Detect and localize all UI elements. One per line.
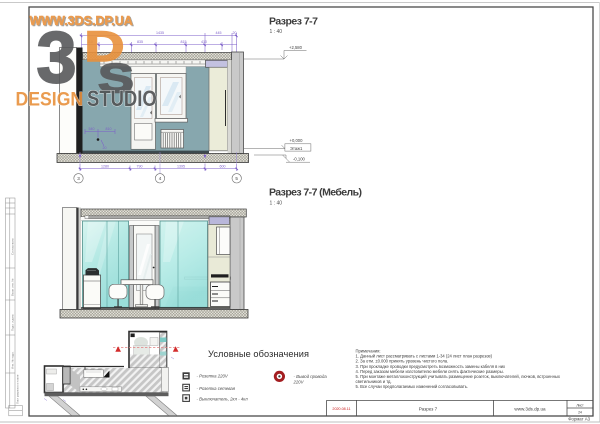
svg-text:Этаж1: Этаж1 [290, 146, 303, 151]
svg-text:Разрез 7-7: Разрез 7-7 [269, 16, 318, 28]
svg-text:5: 5 [235, 176, 238, 181]
svg-text:Условные обозначения: Условные обозначения [208, 349, 309, 359]
svg-text:1395: 1395 [177, 164, 185, 168]
svg-text:Подп. и дата: Подп. и дата [11, 314, 15, 331]
svg-text:5. Все случаи предполагаемых и: 5. Все случаи предполагаемых изменений с… [356, 384, 469, 389]
svg-text:1435: 1435 [156, 31, 164, 35]
svg-text:810: 810 [106, 127, 112, 131]
svg-text:790: 790 [137, 164, 143, 168]
svg-text:3: 3 [77, 176, 80, 181]
svg-text:Инв. № подл.: Инв. № подл. [11, 351, 15, 369]
svg-text:- Вывод провода: - Вывод провода [294, 374, 328, 379]
svg-text:STUDIO: STUDIO [87, 88, 157, 112]
svg-text:3: 3 [37, 18, 77, 98]
svg-text:Формат А3: Формат А3 [568, 417, 590, 422]
svg-text:815: 815 [181, 40, 187, 44]
svg-text:Разрез 7-7 (Мебель): Разрез 7-7 (Мебель) [269, 187, 362, 199]
svg-text:DESIGN: DESIGN [16, 88, 84, 110]
svg-text:Взам. инв. №: Взам. инв. № [11, 279, 15, 296]
svg-text:445: 445 [216, 31, 222, 35]
svg-text:-0,100: -0,100 [293, 157, 306, 162]
svg-text:+2,580: +2,580 [289, 45, 303, 50]
svg-text:Разрез 7: Разрез 7 [419, 406, 438, 411]
svg-text:- Выключатель, 2кл - 4кл: - Выключатель, 2кл - 4кл [197, 396, 249, 401]
svg-text:410: 410 [201, 40, 207, 44]
svg-text:20: 20 [103, 146, 107, 150]
svg-text:1 : 40: 1 : 40 [270, 201, 283, 207]
svg-text:4: 4 [159, 176, 162, 181]
svg-text:- Розетка сетевая: - Розетка сетевая [197, 386, 236, 391]
svg-text:220V: 220V [293, 379, 305, 384]
svg-text:24: 24 [578, 411, 582, 415]
svg-text:Лист разрезов в плане: Лист разрезов в плане [16, 374, 20, 404]
svg-text:Лист: Лист [576, 403, 584, 407]
svg-text:+0,000: +0,000 [290, 138, 304, 143]
svg-text:1280: 1280 [101, 164, 109, 168]
svg-text:Согласовано: Согласовано [11, 238, 15, 255]
svg-text:835: 835 [137, 40, 143, 44]
svg-text:600: 600 [220, 164, 226, 168]
svg-text:540: 540 [89, 127, 95, 131]
svg-text:www.3ds.dp.ua: www.3ds.dp.ua [514, 406, 546, 411]
svg-text:20: 20 [233, 31, 237, 35]
svg-text:- Розетка 220V: - Розетка 220V [197, 374, 229, 379]
svg-text:1 : 40: 1 : 40 [270, 29, 283, 35]
svg-text:2020.08.11: 2020.08.11 [332, 407, 350, 411]
